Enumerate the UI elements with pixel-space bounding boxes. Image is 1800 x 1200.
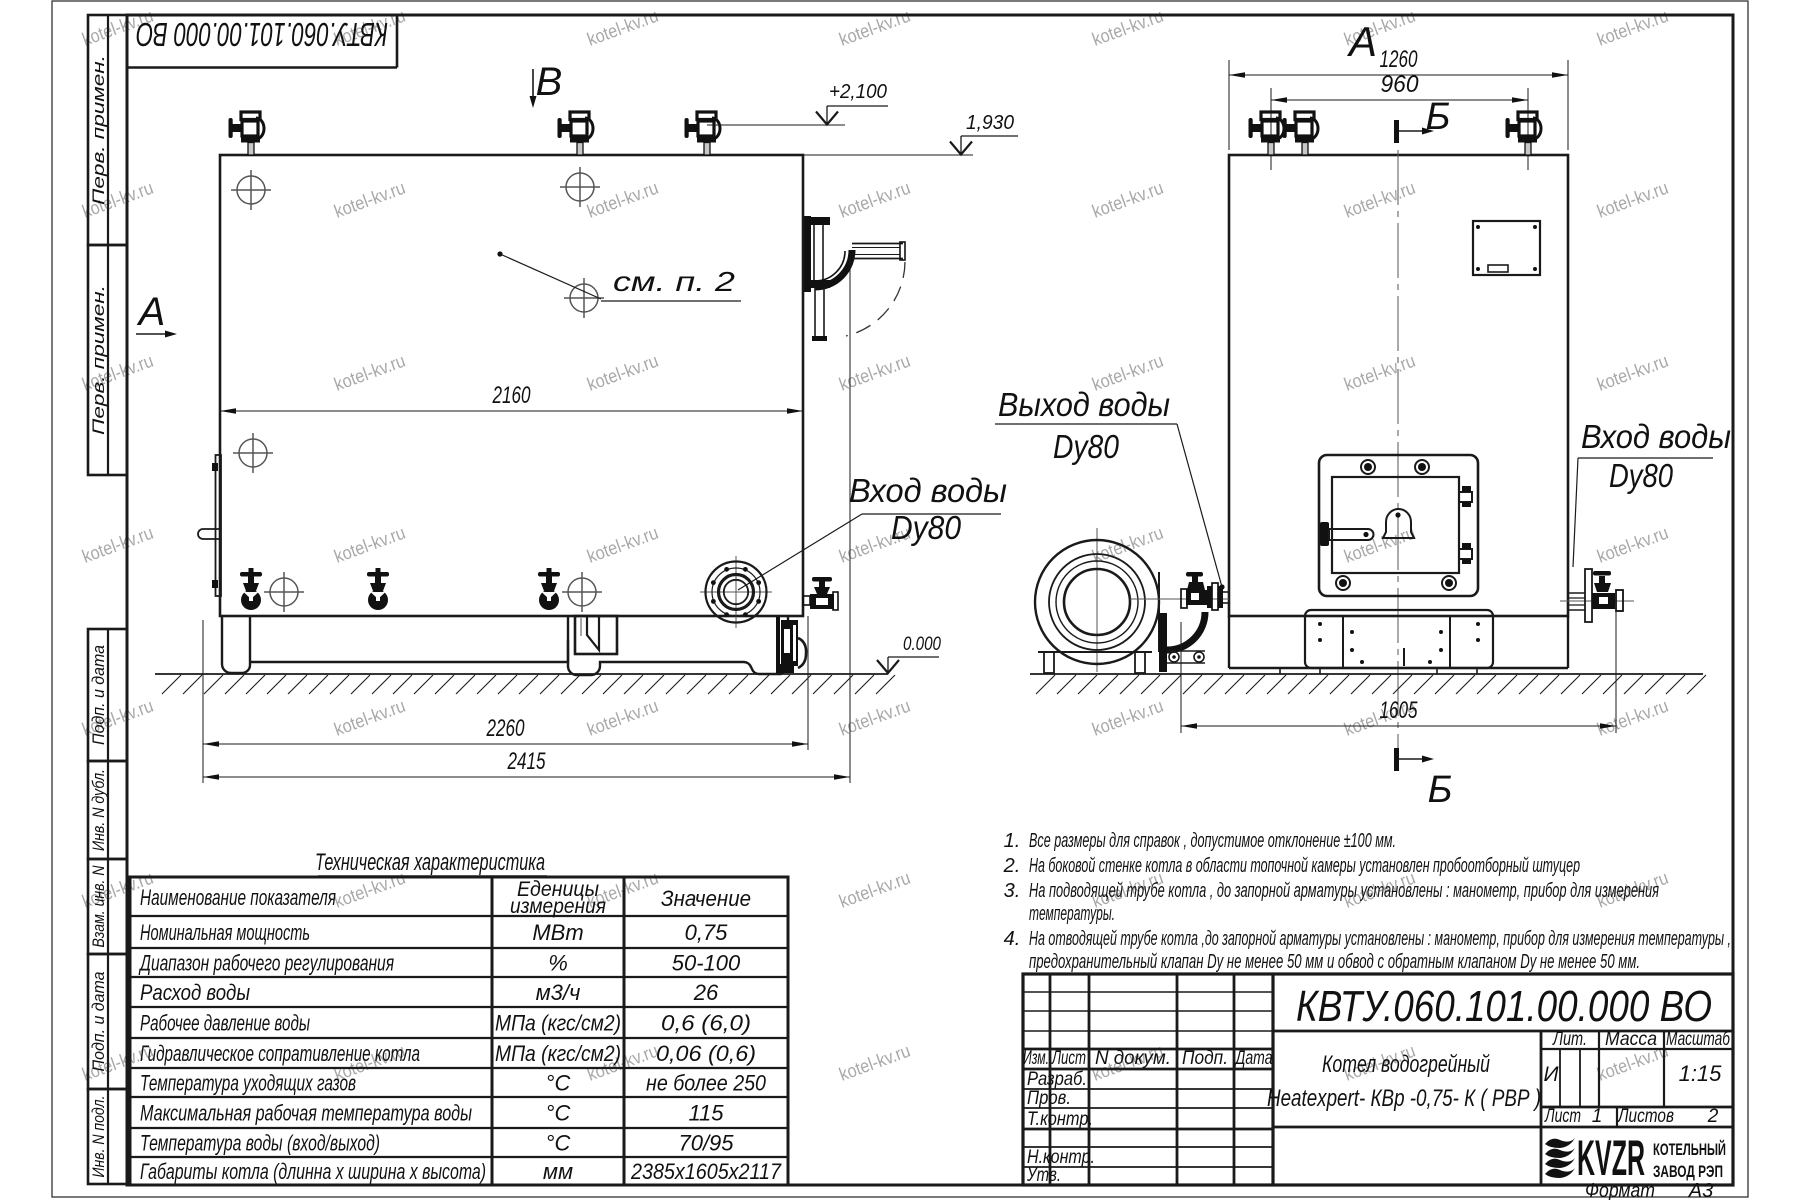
svg-text:Максимальная рабочая температу: Максимальная рабочая температура воды [140, 1101, 472, 1126]
svg-text:КВТУ.060.101.00.000 ВО: КВТУ.060.101.00.000 ВО [136, 16, 388, 53]
svg-text:1:15: 1:15 [1679, 1061, 1723, 1086]
svg-text:Масштаб: Масштаб [1666, 1029, 1731, 1050]
svg-text:Лит.: Лит. [1551, 1029, 1587, 1050]
svg-text:м3/ч: м3/ч [536, 980, 581, 1005]
svg-text:Взам. инв. N: Взам. инв. N [89, 865, 108, 948]
svg-text:МПа (кгс/см2): МПа (кгс/см2) [495, 1011, 621, 1036]
svg-text:Температура уходящих газов: Температура уходящих газов [140, 1071, 356, 1096]
svg-text:температуры.: температуры. [1029, 903, 1115, 925]
svg-text:И: И [1543, 1063, 1559, 1086]
svg-text:Т.контр.: Т.контр. [1027, 1109, 1093, 1130]
svg-text:0,6 (6,0): 0,6 (6,0) [661, 1011, 751, 1036]
svg-text:2.: 2. [1003, 855, 1021, 877]
svg-text:На подводящей трубе котла ,: На подводящей трубе котла , до запорной … [1029, 880, 1659, 902]
svg-text:предохранительный клапан Dу н: предохранительный клапан Dу не менее 50 … [1029, 951, 1640, 973]
svg-text:2160: 2160 [492, 382, 531, 409]
svg-text:Б: Б [1428, 769, 1453, 811]
svg-text:Изм.: Изм. [1023, 1048, 1049, 1069]
svg-text:N докум.: N докум. [1095, 1048, 1171, 1069]
svg-text:1: 1 [1592, 1106, 1603, 1127]
svg-text:Вход воды: Вход воды [849, 472, 1007, 509]
svg-text:МВт: МВт [532, 920, 583, 945]
svg-text:Пров.: Пров. [1027, 1088, 1071, 1109]
svg-text:2: 2 [1707, 1106, 1719, 1127]
svg-text:Значение: Значение [661, 886, 751, 911]
svg-text:Утв.: Утв. [1026, 1165, 1061, 1186]
svg-text:Вход воды: Вход воды [1581, 418, 1731, 455]
svg-text:Выход воды: Выход воды [998, 386, 1170, 423]
svg-text:0,06 (0,6): 0,06 (0,6) [656, 1041, 756, 1066]
svg-text:2415: 2415 [507, 748, 546, 775]
svg-text:МПа (кгс/см2): МПа (кгс/см2) [495, 1041, 621, 1066]
svg-text:Расход воды: Расход воды [140, 980, 250, 1005]
svg-text:1.: 1. [1004, 830, 1021, 852]
svg-text:Техническая характеристика: Техническая характеристика [315, 849, 545, 876]
svg-text:мм: мм [543, 1159, 573, 1184]
svg-text:Инв. N подл.: Инв. N подл. [89, 1096, 108, 1178]
svg-text:Номинальная мощность: Номинальная мощность [140, 920, 310, 945]
svg-text:4.: 4. [1004, 928, 1021, 950]
svg-text:Б: Б [1426, 96, 1451, 138]
svg-text:1260: 1260 [1380, 46, 1418, 73]
svg-text:70/95: 70/95 [678, 1131, 734, 1156]
svg-text:не более 250: не более 250 [646, 1071, 767, 1096]
svg-text:Перв. примен.: Перв. примен. [89, 285, 108, 435]
svg-text:КОТЕЛЬНЫЙ: КОТЕЛЬНЫЙ [1653, 1140, 1726, 1159]
svg-text:%: % [548, 951, 568, 976]
svg-text:°С: °С [546, 1131, 571, 1156]
svg-text:Формат: Формат [1585, 1180, 1655, 1200]
svg-text:Все размеры для справок , допу: Все размеры для справок , допустимое отк… [1029, 830, 1396, 852]
svg-text:Подп.: Подп. [1182, 1048, 1228, 1069]
svg-text:измерения: измерения [510, 895, 606, 918]
svg-text:Лист: Лист [1544, 1106, 1581, 1127]
svg-text:960: 960 [1381, 71, 1420, 98]
svg-text:ЗАВОД РЭП: ЗАВОД РЭП [1653, 1162, 1723, 1181]
svg-text:Наименование показателя: Наименование показателя [140, 885, 336, 910]
svg-text:Диапазон рабочего регулировани: Диапазон рабочего регулирования [138, 951, 394, 976]
svg-text:Габариты котла (длинна х ширин: Габариты котла (длинна х ширина х высота… [140, 1159, 486, 1184]
svg-text:Дата: Дата [1234, 1048, 1272, 1069]
svg-text:26: 26 [693, 980, 719, 1005]
svg-text:Масса: Масса [1605, 1029, 1657, 1050]
svg-text:Dy80: Dy80 [1609, 457, 1674, 494]
svg-text:50-100: 50-100 [672, 951, 741, 976]
svg-text:°С: °С [546, 1101, 571, 1126]
svg-text:0.000: 0.000 [903, 634, 941, 655]
svg-text:2385х1605х2117: 2385х1605х2117 [630, 1159, 782, 1184]
svg-text:Heatexpert- КВр -0,75- К ( РВР: Heatexpert- КВр -0,75- К ( РВР ) [1267, 1085, 1541, 1112]
svg-text:Гидравлическое сопративление к: Гидравлическое сопративление котла [140, 1041, 420, 1066]
svg-text:Листов: Листов [1616, 1106, 1674, 1127]
svg-text:А: А [137, 290, 166, 334]
svg-text:Температура воды (вход/выход): Температура воды (вход/выход) [140, 1131, 380, 1156]
svg-text:0,75: 0,75 [685, 920, 729, 945]
svg-text:А3: А3 [1688, 1180, 1713, 1200]
svg-text:На боковой стенке котла в обла: На боковой стенке котла в области топочн… [1029, 855, 1580, 877]
svg-text:Подп. и дата: Подп. и дата [89, 645, 108, 745]
svg-text:Перв. примен.: Перв. примен. [89, 55, 108, 205]
svg-text:°С: °С [546, 1071, 571, 1096]
svg-text:Лист: Лист [1051, 1048, 1086, 1069]
svg-text:КВТУ.060.101.00.000 ВО: КВТУ.060.101.00.000 ВО [1296, 982, 1712, 1031]
svg-text:2260: 2260 [486, 715, 525, 742]
svg-text:KVZR: KVZR [1577, 1130, 1645, 1186]
svg-text:+2,100: +2,100 [829, 81, 887, 103]
svg-text:Разраб.: Разраб. [1027, 1069, 1087, 1090]
svg-text:В: В [536, 60, 563, 104]
svg-text:Dy80: Dy80 [1053, 428, 1120, 465]
svg-text:На отводящей трубе котла ,до з: На отводящей трубе котла ,до запорной ар… [1029, 928, 1731, 950]
svg-text:1,930: 1,930 [966, 112, 1014, 134]
svg-text:Подп. и дата: Подп. и дата [89, 972, 108, 1072]
svg-text:Инв. N дубл.: Инв. N дубл. [89, 769, 108, 851]
svg-text:115: 115 [688, 1101, 724, 1126]
svg-text:А: А [1346, 18, 1377, 65]
svg-text:Рабочее давление воды: Рабочее давление воды [140, 1011, 310, 1036]
svg-text:1605: 1605 [1380, 697, 1418, 724]
svg-text:см. п. 2: см. п. 2 [613, 266, 736, 297]
svg-text:3.: 3. [1004, 880, 1021, 902]
svg-text:Котел водогрейный: Котел водогрейный [1322, 1051, 1490, 1078]
